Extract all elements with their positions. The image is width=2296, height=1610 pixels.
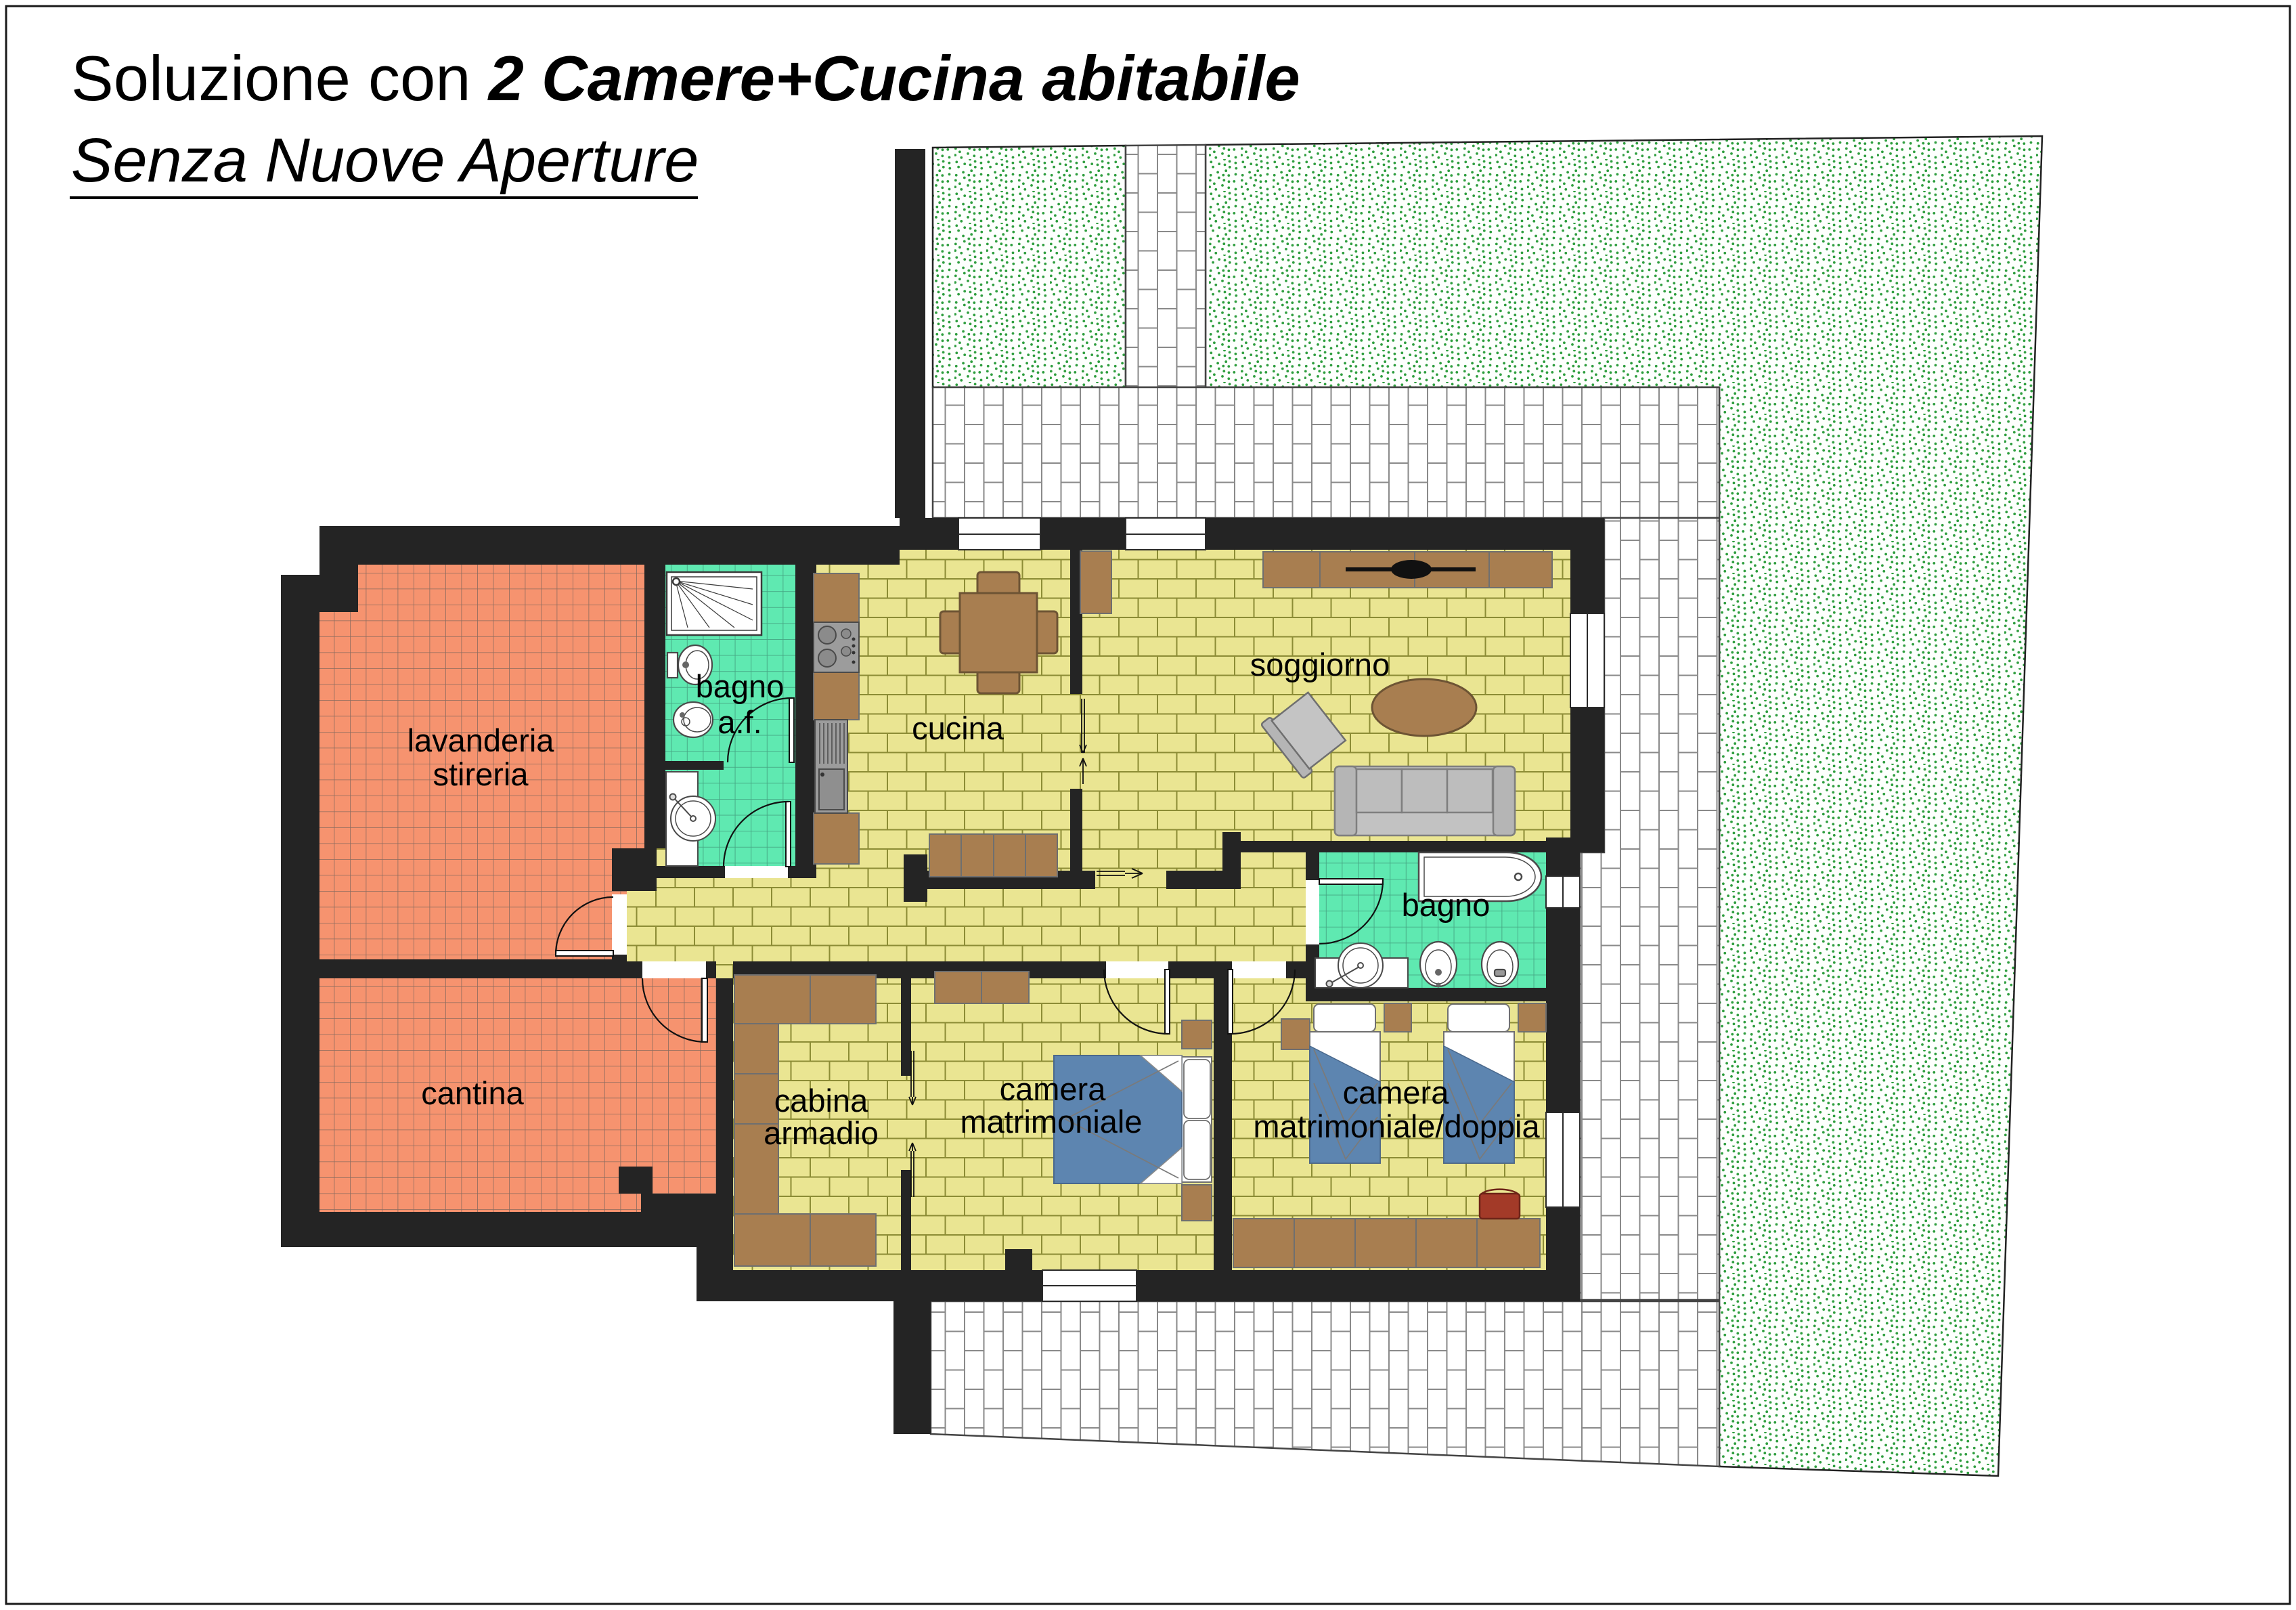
svg-text:Senza Nuove Aperture: Senza Nuove Aperture [71, 126, 699, 195]
svg-text:stireria: stireria [433, 756, 529, 792]
svg-text:a.f.: a.f. [717, 704, 761, 740]
svg-text:camera: camera [1343, 1074, 1450, 1110]
svg-text:cucina: cucina [912, 710, 1005, 746]
svg-text:cabina: cabina [774, 1083, 868, 1118]
svg-text:lavanderia: lavanderia [407, 722, 555, 758]
svg-text:soggiorno: soggiorno [1250, 647, 1390, 682]
svg-text:camera: camera [1000, 1071, 1107, 1107]
svg-text:bagno: bagno [696, 668, 785, 704]
svg-text:bagno: bagno [1402, 887, 1491, 923]
svg-text:cantina: cantina [421, 1075, 524, 1111]
svg-text:matrimoniale/doppia: matrimoniale/doppia [1253, 1108, 1540, 1144]
svg-text:armadio: armadio [764, 1115, 879, 1151]
svg-text:Soluzione con 2 Camere+Cucina: Soluzione con 2 Camere+Cucina abitabile [71, 43, 1300, 114]
svg-text:matrimoniale: matrimoniale [960, 1104, 1142, 1139]
